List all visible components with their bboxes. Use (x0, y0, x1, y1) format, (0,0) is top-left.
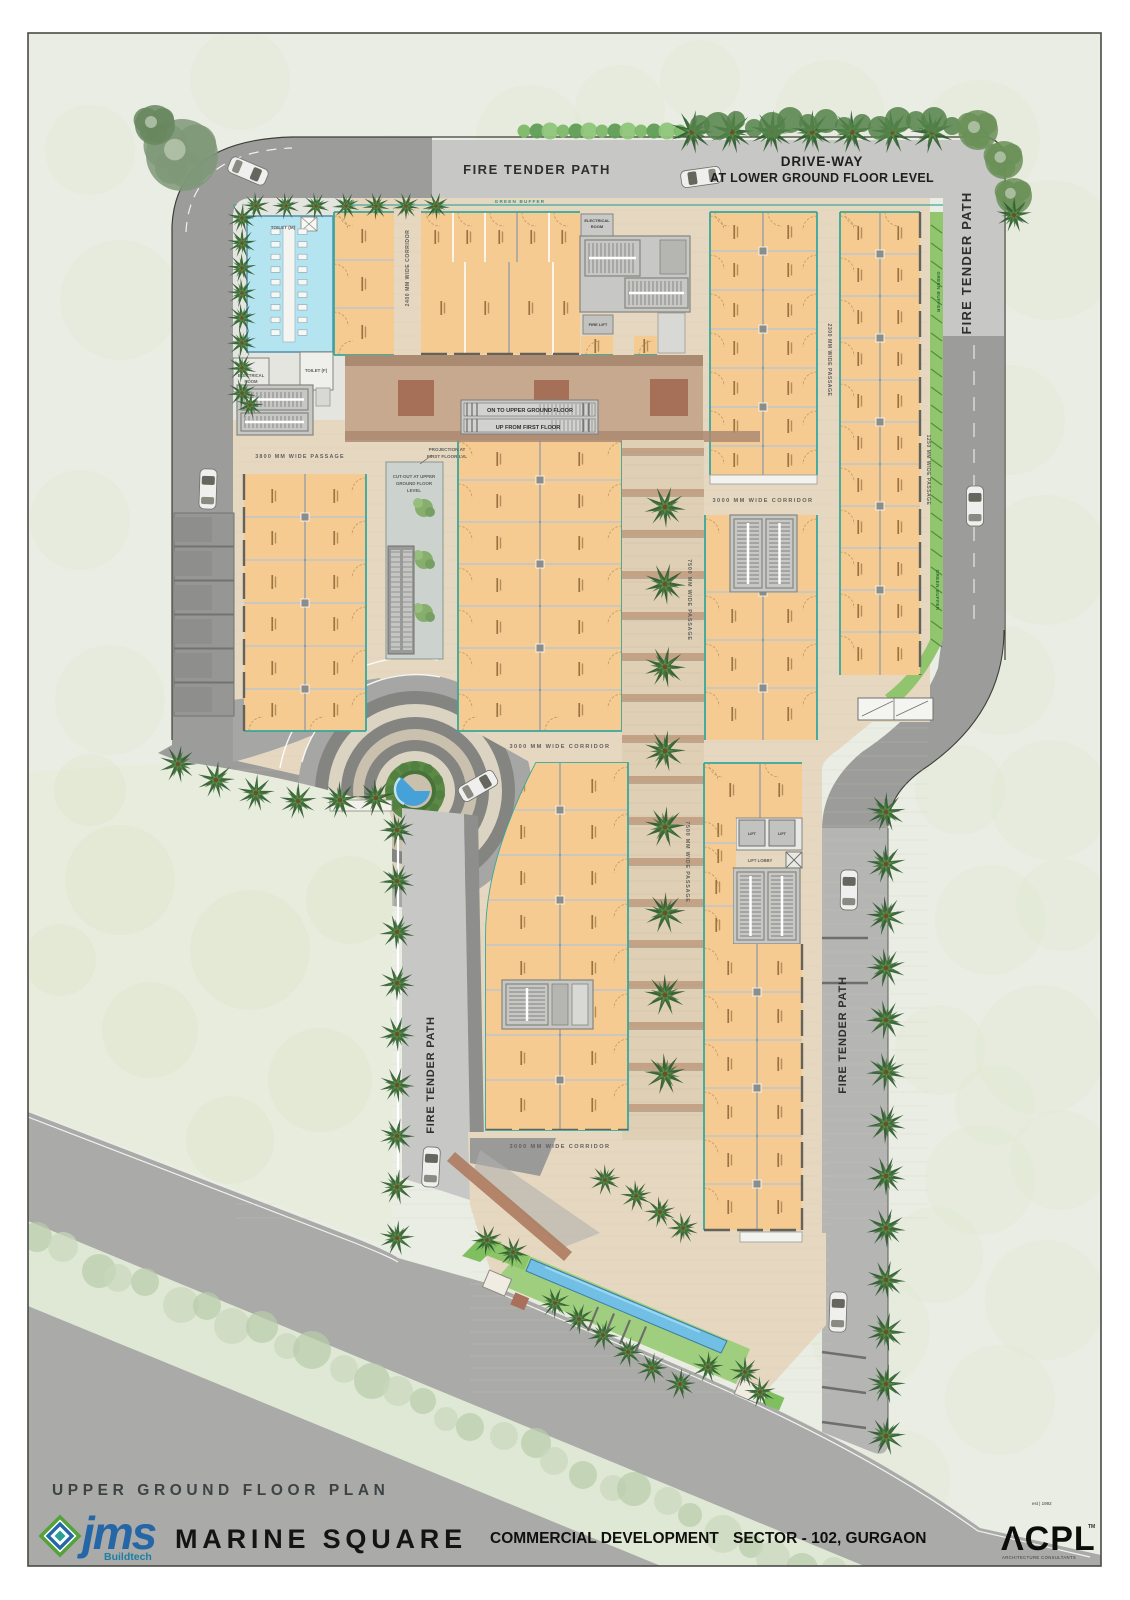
svg-text:GREEN BUFFER: GREEN BUFFER (495, 199, 546, 204)
svg-text:ARCHITECTURE CONSULTANTS: ARCHITECTURE CONSULTANTS (1002, 1555, 1076, 1560)
svg-text:SECTOR - 102, GURGAON: SECTOR - 102, GURGAON (733, 1530, 927, 1547)
svg-text:LEVEL: LEVEL (407, 488, 421, 493)
svg-text:est | 1992: est | 1992 (1032, 1501, 1052, 1506)
svg-text:UPPER GROUND FLOOR PLAN: UPPER GROUND FLOOR PLAN (52, 1482, 389, 1499)
svg-text:Buildtech: Buildtech (104, 1551, 152, 1563)
svg-text:7500 MM WIDE PASSAGE: 7500 MM WIDE PASSAGE (686, 559, 692, 641)
svg-text:FIRE TENDER PATH: FIRE TENDER PATH (959, 192, 974, 335)
svg-text:GROUND FLOOR: GROUND FLOOR (396, 481, 433, 486)
svg-text:1250 MM WIDE PASSAGE: 1250 MM WIDE PASSAGE (925, 435, 931, 506)
svg-text:FIRE TENDER PATH: FIRE TENDER PATH (425, 1016, 437, 1134)
svg-text:3800 MM WIDE PASSAGE: 3800 MM WIDE PASSAGE (255, 454, 345, 460)
svg-text:ΛCPL: ΛCPL (1001, 1520, 1096, 1558)
svg-text:3000 MM WIDE CORRIDOR: 3000 MM WIDE CORRIDOR (510, 744, 611, 750)
svg-text:CUT-OUT AT UPPER: CUT-OUT AT UPPER (393, 474, 436, 479)
svg-text:DRIVE-WAY: DRIVE-WAY (781, 154, 863, 169)
svg-text:GREEN BUFFER: GREEN BUFFER (936, 271, 941, 312)
svg-text:FIRE LIFT: FIRE LIFT (589, 322, 608, 327)
svg-text:PROJECTION AT: PROJECTION AT (429, 447, 466, 452)
svg-text:FIRE TENDER PATH: FIRE TENDER PATH (463, 162, 611, 177)
svg-text:TOILET (M): TOILET (M) (271, 225, 296, 230)
svg-text:COMMERCIAL DEVELOPMENT: COMMERCIAL DEVELOPMENT (490, 1530, 719, 1547)
svg-text:AT LOWER GROUND FLOOR LEVEL: AT LOWER GROUND FLOOR LEVEL (710, 171, 934, 185)
svg-text:2300 MM WIDE PASSAGE: 2300 MM WIDE PASSAGE (826, 323, 832, 396)
svg-text:FIRST FLOOR LVL: FIRST FLOOR LVL (427, 454, 467, 459)
svg-text:UP FROM FIRST FLOOR: UP FROM FIRST FLOOR (496, 425, 561, 431)
svg-text:ELECTRICAL: ELECTRICAL (584, 218, 610, 223)
svg-text:MARINE SQUARE: MARINE SQUARE (175, 1524, 467, 1554)
svg-text:LIFT: LIFT (778, 832, 787, 836)
svg-text:LIFT: LIFT (748, 832, 757, 836)
svg-text:LIFT LOBBY: LIFT LOBBY (748, 858, 773, 863)
svg-text:TM: TM (1088, 1524, 1095, 1530)
svg-text:ROOM: ROOM (591, 224, 604, 229)
svg-text:3000 MM WIDE CORRIDOR: 3000 MM WIDE CORRIDOR (510, 1144, 611, 1150)
svg-text:2400 MM WIDE CORRIDOR: 2400 MM WIDE CORRIDOR (405, 230, 411, 307)
svg-text:7500 MM WIDE PASSAGE: 7500 MM WIDE PASSAGE (684, 821, 690, 903)
svg-text:TOILET (F): TOILET (F) (305, 368, 328, 373)
svg-text:FIRE TENDER PATH: FIRE TENDER PATH (837, 976, 849, 1094)
svg-text:ON TO UPPER GROUND FLOOR: ON TO UPPER GROUND FLOOR (487, 408, 573, 414)
svg-text:3000 MM WIDE CORRIDOR: 3000 MM WIDE CORRIDOR (713, 498, 814, 504)
svg-text:GREEN BUFFER: GREEN BUFFER (935, 569, 940, 610)
